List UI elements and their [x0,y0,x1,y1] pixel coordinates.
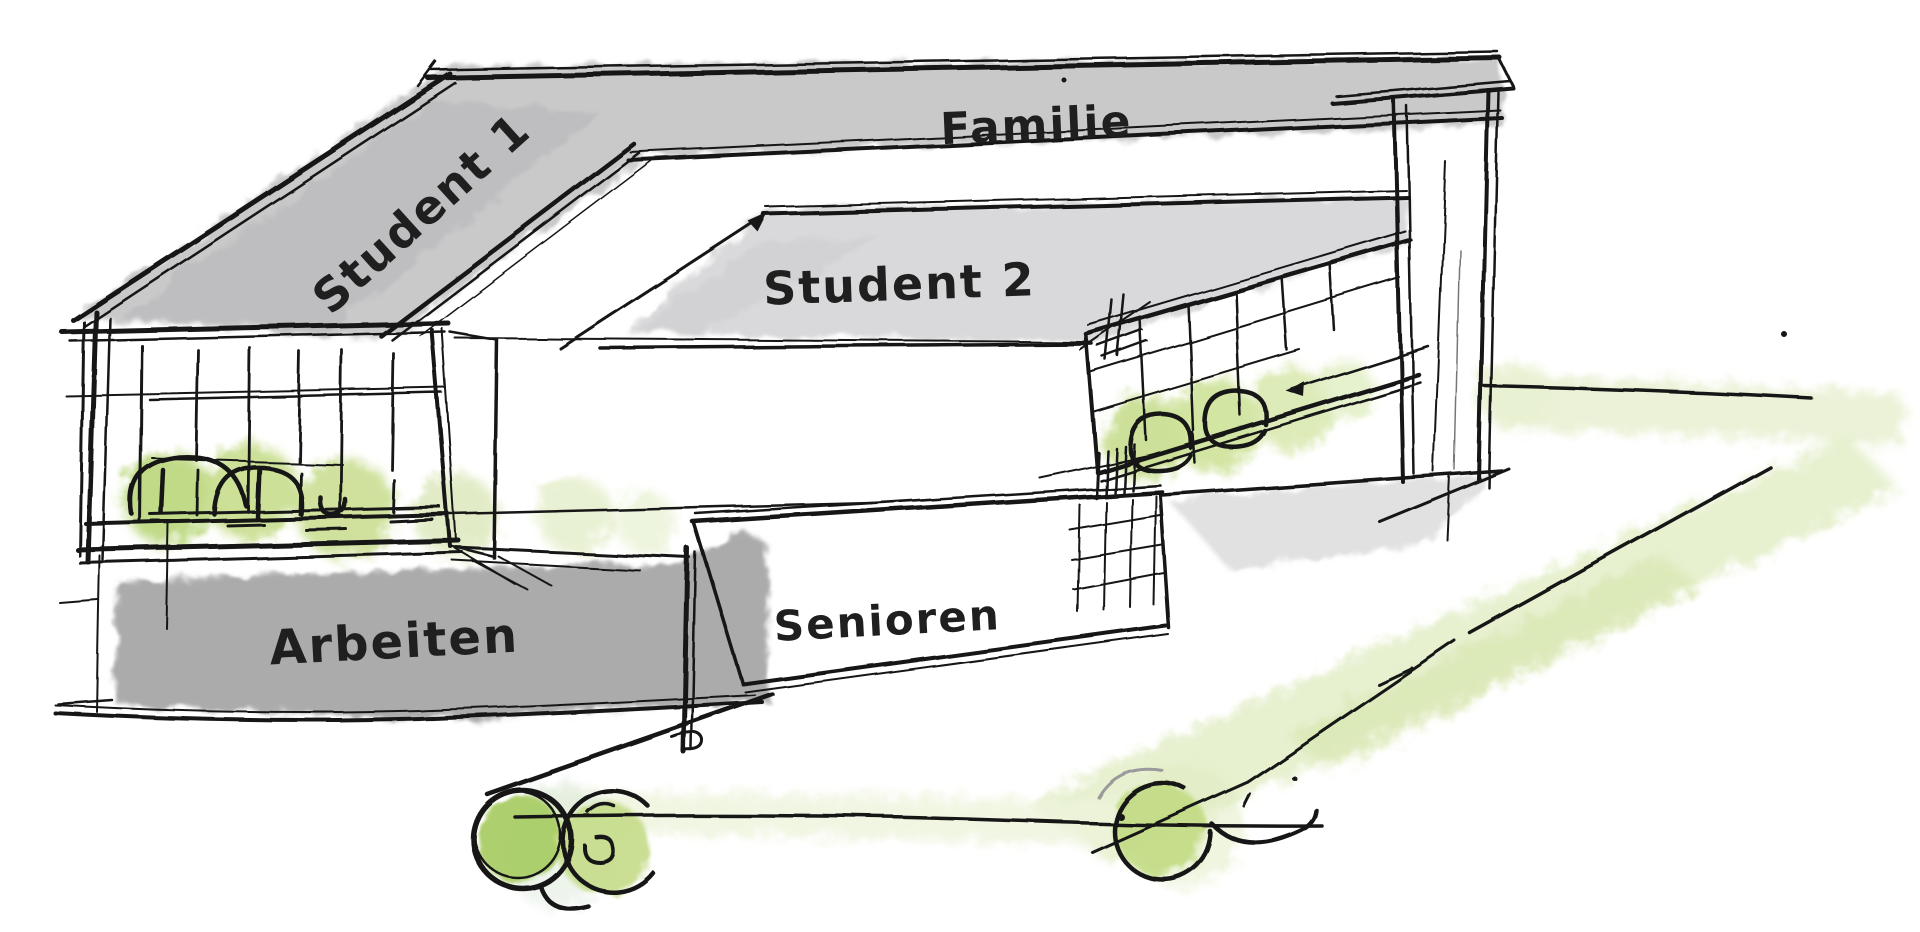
building-sketch: Student 1 Familie Student 2 Arbeiten Sen… [0,0,1920,932]
label-familie: Familie [939,96,1133,155]
senioren-side-grid [1070,496,1164,612]
ink-dot [1062,78,1067,83]
bush-wash [537,477,613,553]
bush-wash [615,492,675,552]
ink-dot [1781,331,1787,337]
ink-dot [1117,813,1124,820]
label-student2: Student 2 [762,252,1036,315]
lawn-wash-top-right [1470,372,1906,444]
sketch-canvas: Student 1 Familie Student 2 Arbeiten Sen… [0,0,1920,932]
ink-dot [1291,775,1296,780]
label-senioren: Senioren [773,590,1002,651]
pole-foot [672,733,703,751]
